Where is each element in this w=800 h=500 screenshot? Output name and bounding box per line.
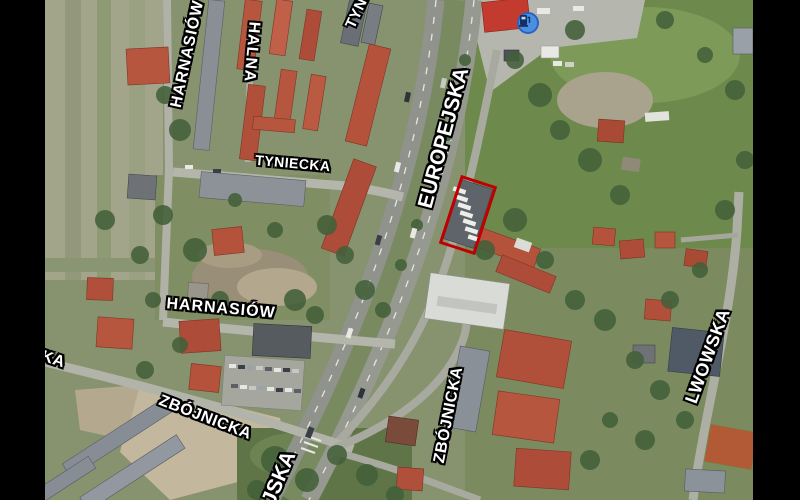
letterbox-right <box>753 0 800 500</box>
aerial-imagery <box>45 0 753 500</box>
parking-lot <box>221 355 304 410</box>
satellite-map[interactable]: EUROPEJSKAEUROPEJSKAHARNASIÓWHALNATYNIEC… <box>45 0 753 500</box>
screenshot-stage: EUROPEJSKAEUROPEJSKAHARNASIÓWHALNATYNIEC… <box>0 0 800 500</box>
tennis-court <box>704 424 753 470</box>
letterbox-left <box>0 0 45 500</box>
gas-station-marker[interactable] <box>517 12 539 34</box>
fuel-pump-icon <box>519 14 531 27</box>
